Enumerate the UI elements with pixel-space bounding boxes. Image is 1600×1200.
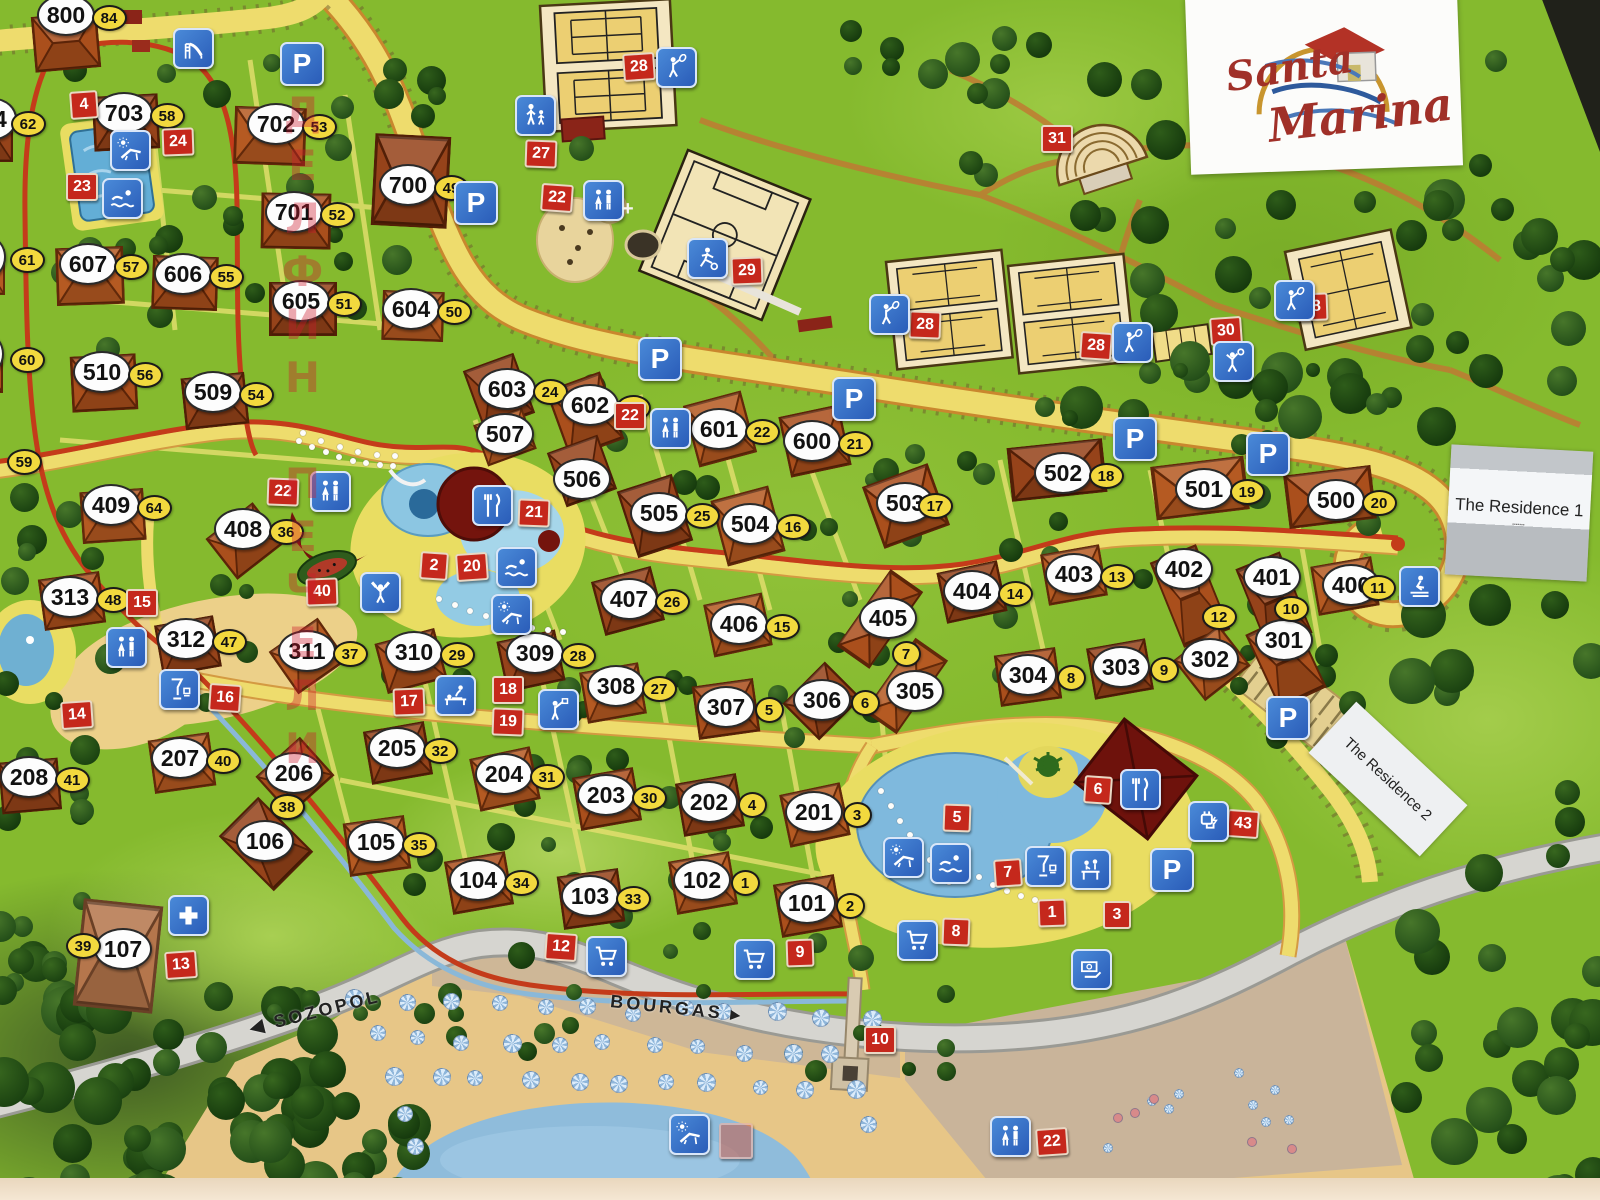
wc-icon <box>310 471 351 512</box>
icons-layer: PPPPPPPP <box>0 0 1600 1200</box>
cart-icon <box>734 939 775 980</box>
lounger-icon <box>491 594 532 635</box>
restaurant-icon <box>472 485 513 526</box>
parking-icon: P <box>454 181 498 225</box>
ev-icon <box>1188 801 1229 842</box>
medic-icon <box>168 895 209 936</box>
swim-icon <box>930 843 971 884</box>
parking-icon: P <box>1246 432 1290 476</box>
swim-icon <box>496 547 537 588</box>
resort-map: 8008470358702537015270049607576065560551… <box>0 0 1600 1200</box>
games-icon <box>538 689 579 730</box>
wc-icon <box>106 627 147 668</box>
lounger-icon <box>883 837 924 878</box>
tennis-icon <box>869 294 910 335</box>
soccer-icon <box>687 238 728 279</box>
wc-icon <box>990 1116 1031 1157</box>
fitness-icon <box>360 572 401 613</box>
volleyball-icon <box>1213 341 1254 382</box>
lounger-icon <box>669 1114 710 1155</box>
wc-icon <box>583 180 624 221</box>
parking-icon: P <box>1113 417 1157 461</box>
bar-icon <box>159 669 200 710</box>
massage-icon <box>435 675 476 716</box>
reception-icon <box>1070 849 1111 890</box>
parking-icon: P <box>1266 696 1310 740</box>
parking-icon: P <box>1150 848 1194 892</box>
parking-icon: P <box>280 42 324 86</box>
lounger-icon <box>110 130 151 171</box>
parentchild-icon <box>515 95 556 136</box>
playground-icon <box>173 28 214 69</box>
cart-icon <box>586 936 627 977</box>
tennis-icon <box>656 47 697 88</box>
wc-icon <box>650 408 691 449</box>
cart-icon <box>897 920 938 961</box>
bar-icon <box>1025 846 1066 887</box>
parking-icon: P <box>638 337 682 381</box>
tennis-icon <box>1274 280 1315 321</box>
swim-icon <box>102 178 143 219</box>
waterski-icon <box>1399 566 1440 607</box>
restaurant-icon <box>1120 769 1161 810</box>
tennis-icon <box>1112 322 1153 363</box>
exchange-icon <box>1071 949 1112 990</box>
parking-icon: P <box>832 377 876 421</box>
